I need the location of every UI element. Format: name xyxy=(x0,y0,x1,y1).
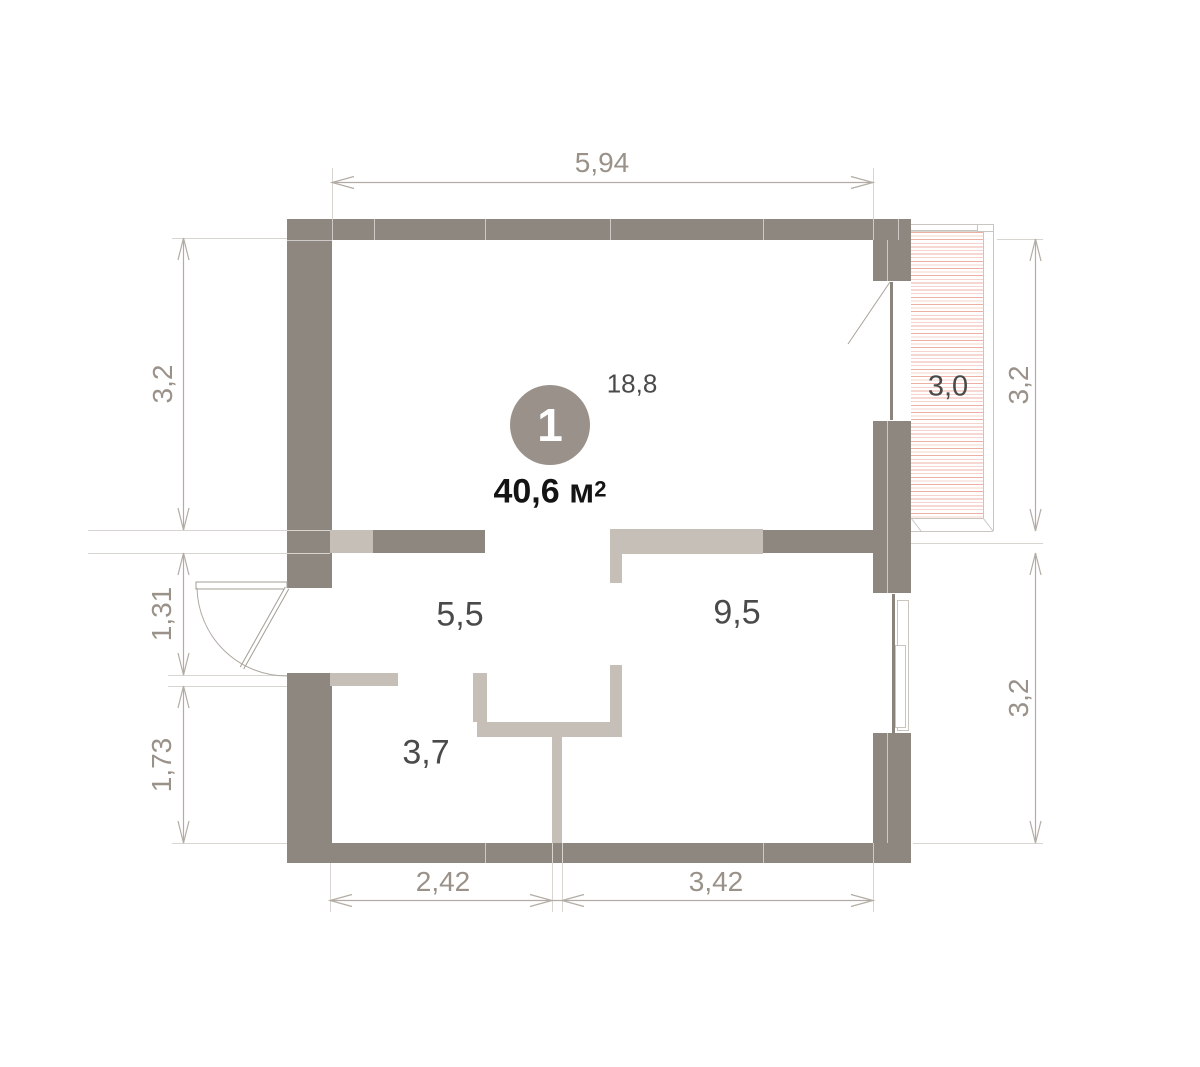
room-label-bath: 3,7 xyxy=(402,734,449,773)
balcony-door xyxy=(848,282,892,420)
dim-bottom-right: 3,42 xyxy=(689,866,744,898)
dim-top: 5,94 xyxy=(575,147,630,179)
dim-bottom-left: 2,42 xyxy=(416,866,471,898)
dim-left-upper: 3,2 xyxy=(147,365,179,404)
dim-left-lower: 1,73 xyxy=(146,738,178,793)
total-area: 40,6 м2 xyxy=(493,473,606,512)
dimension-lines xyxy=(178,177,1041,907)
dim-right-lower: 3,2 xyxy=(1003,679,1035,718)
room-label-living: 18,8 xyxy=(607,369,658,400)
total-area-unit: м xyxy=(569,473,594,511)
room-label-hallway: 5,5 xyxy=(436,596,483,635)
floor-plan: 5,94 3,2 1,31 1,73 3,2 3,2 2,42 3,42 18,… xyxy=(0,0,1200,1067)
room-label-room: 9,5 xyxy=(713,594,760,633)
unit-number-badge: 1 xyxy=(510,385,590,465)
entrance-door xyxy=(196,582,287,676)
room-label-balcony: 3,0 xyxy=(928,371,968,404)
dim-left-middle: 1,31 xyxy=(146,587,178,642)
window xyxy=(894,594,909,733)
extension-lines xyxy=(88,168,1043,912)
dim-right-upper: 3,2 xyxy=(1003,366,1035,405)
total-area-value: 40,6 xyxy=(493,473,559,511)
unit-number: 1 xyxy=(537,398,563,452)
total-area-sup: 2 xyxy=(594,477,606,502)
